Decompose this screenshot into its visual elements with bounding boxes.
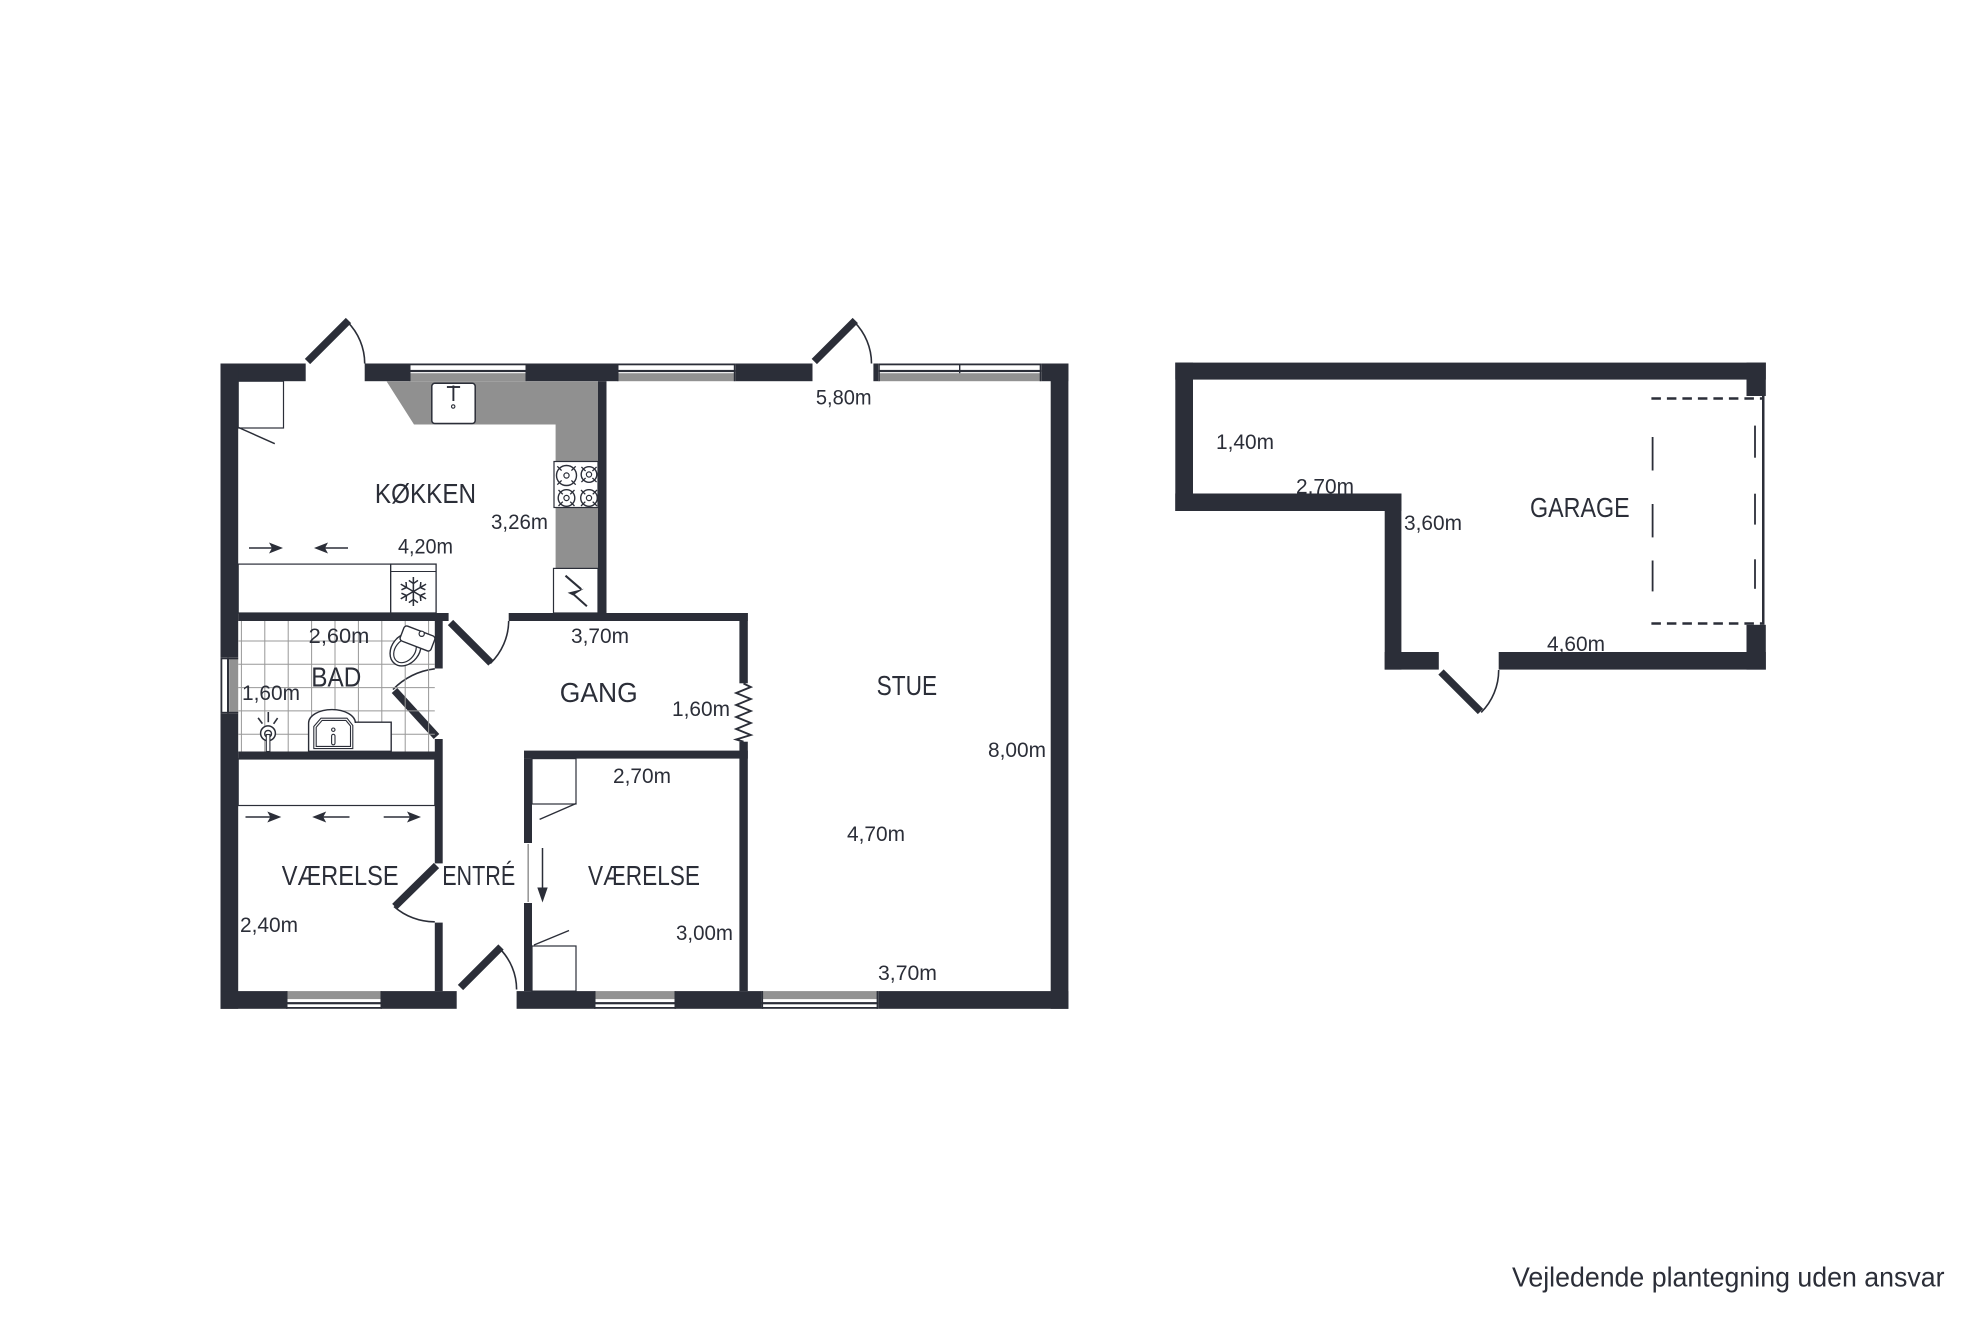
svg-text:ENTRÉ: ENTRÉ — [442, 860, 515, 891]
svg-text:GANG: GANG — [560, 677, 638, 708]
svg-text:5,80m: 5,80m — [816, 386, 872, 409]
svg-text:1,40m: 1,40m — [1216, 431, 1274, 454]
svg-text:4,70m: 4,70m — [847, 823, 905, 846]
svg-text:3,26m: 3,26m — [491, 511, 548, 534]
svg-text:2,40m: 2,40m — [240, 914, 298, 937]
svg-text:2,70m: 2,70m — [613, 765, 671, 788]
svg-text:BAD: BAD — [311, 661, 361, 692]
svg-text:2,60m: 2,60m — [309, 625, 370, 648]
svg-text:4,20m: 4,20m — [398, 536, 453, 559]
svg-text:3,70m: 3,70m — [878, 962, 937, 985]
svg-text:KØKKEN: KØKKEN — [375, 478, 476, 509]
svg-text:4,60m: 4,60m — [1547, 633, 1605, 656]
svg-text:2,70m: 2,70m — [1296, 476, 1354, 499]
svg-text:1,60m: 1,60m — [672, 698, 730, 721]
svg-text:8,00m: 8,00m — [988, 739, 1046, 762]
svg-text:VÆRELSE: VÆRELSE — [588, 860, 700, 891]
svg-text:3,00m: 3,00m — [676, 922, 733, 945]
svg-text:3,60m: 3,60m — [1404, 512, 1462, 535]
svg-text:STUE: STUE — [877, 670, 938, 701]
svg-text:VÆRELSE: VÆRELSE — [282, 860, 399, 891]
svg-text:GARAGE: GARAGE — [1530, 492, 1630, 523]
svg-text:Vejledende plantegning uden an: Vejledende plantegning uden ansvar — [1512, 1261, 1945, 1292]
svg-text:3,70m: 3,70m — [571, 625, 629, 648]
svg-text:1,60m: 1,60m — [242, 682, 300, 705]
